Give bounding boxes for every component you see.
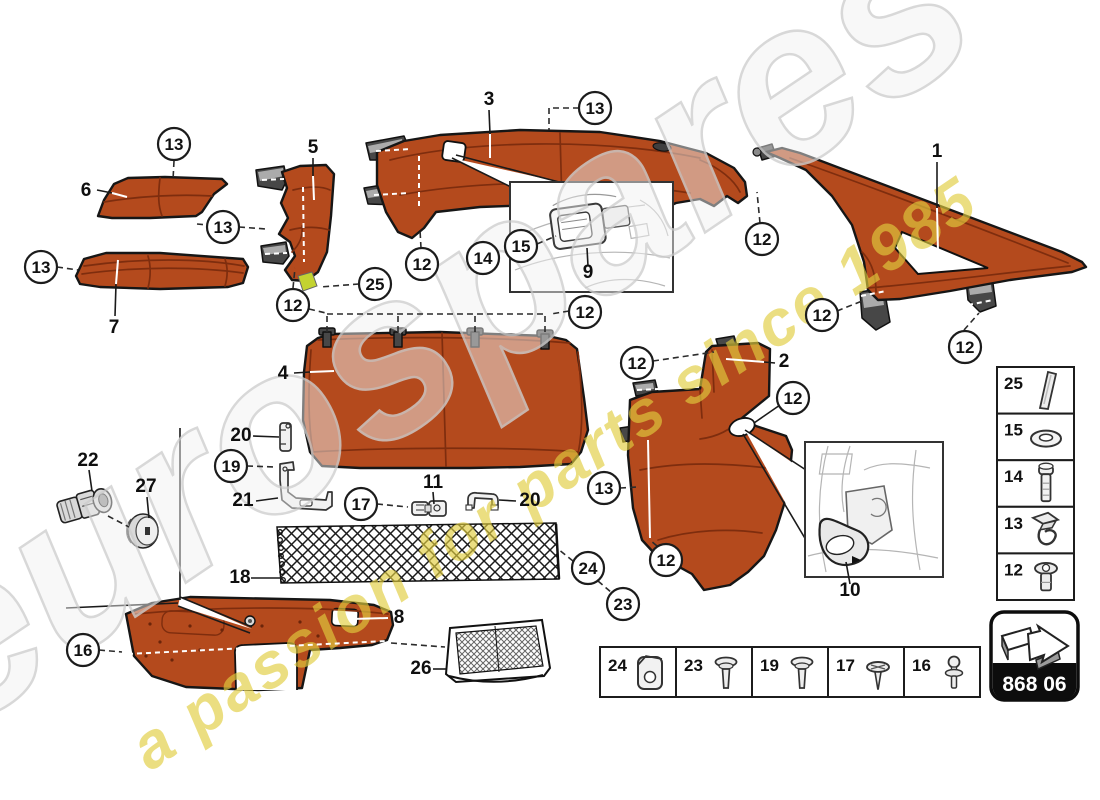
part-7-sill-trim	[76, 253, 248, 289]
sidebar-cell-12[interactable]: 12	[997, 553, 1074, 600]
svg-text:19: 19	[222, 457, 241, 476]
legend-cell-19[interactable]: 19	[752, 647, 828, 697]
svg-text:16: 16	[74, 641, 93, 660]
sidebar-cell-number: 15	[1004, 421, 1023, 440]
sidebar-cell-number: 25	[1004, 374, 1023, 393]
part-1-a-pillar-trim	[753, 144, 1086, 330]
svg-text:23: 23	[614, 595, 633, 614]
part-label-7[interactable]: 7	[109, 317, 120, 338]
svg-text:12: 12	[576, 303, 595, 322]
callout-25[interactable]: 25	[359, 268, 391, 300]
callout-12[interactable]: 12	[650, 544, 682, 576]
sidebar-cell-number: 14	[1004, 467, 1023, 486]
legend-cell-number: 17	[836, 656, 855, 675]
svg-text:25: 25	[366, 275, 385, 294]
svg-text:24: 24	[579, 559, 598, 578]
svg-text:14: 14	[474, 249, 493, 268]
part-label-8[interactable]: 8	[394, 607, 405, 628]
part-label-4[interactable]: 4	[278, 363, 289, 384]
part-label-5[interactable]: 5	[308, 137, 319, 158]
part-label-26[interactable]: 26	[410, 658, 431, 679]
inset-coat-hook-detail	[805, 442, 943, 577]
callout-12[interactable]: 12	[949, 331, 981, 363]
callout-17[interactable]: 17	[345, 488, 377, 520]
part-label-2[interactable]: 2	[779, 351, 790, 372]
legend-cell-17[interactable]: 17	[828, 647, 904, 697]
sidebar-cell-number: 13	[1004, 514, 1023, 533]
callout-23[interactable]: 23	[607, 588, 639, 620]
clamp-bracket-icon	[638, 656, 662, 689]
part-5-b-pillar-trim	[256, 165, 334, 291]
diagram-part-number: 868 06	[1002, 673, 1066, 696]
svg-text:12: 12	[657, 551, 676, 570]
callout-12[interactable]: 12	[777, 382, 809, 414]
callout-13[interactable]: 13	[25, 251, 57, 283]
part-22-socket	[56, 486, 115, 525]
callout-12[interactable]: 12	[746, 223, 778, 255]
part-label-10[interactable]: 10	[839, 580, 860, 601]
legend-cell-23[interactable]: 23	[676, 647, 752, 697]
callout-13[interactable]: 13	[158, 128, 190, 160]
callout-13[interactable]: 13	[579, 92, 611, 124]
svg-text:13: 13	[32, 258, 51, 277]
svg-text:12: 12	[413, 255, 432, 274]
callout-12[interactable]: 12	[277, 289, 309, 321]
callout-12[interactable]: 12	[406, 248, 438, 280]
svg-text:12: 12	[784, 389, 803, 408]
legend-cell-24[interactable]: 24	[600, 647, 676, 697]
svg-text:12: 12	[813, 306, 832, 325]
part-label-27[interactable]: 27	[135, 476, 156, 497]
legend-cell-16[interactable]: 16	[904, 647, 980, 697]
svg-text:13: 13	[595, 479, 614, 498]
svg-text:12: 12	[628, 354, 647, 373]
part-label-3[interactable]: 3	[484, 89, 495, 110]
bracket-20-upper	[280, 423, 291, 451]
bracket-21	[280, 462, 332, 510]
svg-text:17: 17	[352, 495, 371, 514]
bracket-20-right	[466, 493, 498, 510]
sidebar-cell-13[interactable]: 13	[997, 507, 1074, 554]
interior-decor-parts-diagram: eurospares a passion for parts since 198…	[0, 0, 1100, 800]
part-4-headliner	[303, 328, 588, 468]
fastener-legend: 2423191716	[600, 647, 980, 697]
part-label-18[interactable]: 18	[229, 567, 250, 588]
part-label-20[interactable]: 20	[230, 425, 251, 446]
callout-12[interactable]: 12	[806, 299, 838, 331]
sidebar-cell-14[interactable]: 14	[997, 460, 1074, 507]
sidebar-cell-25[interactable]: 25	[997, 367, 1074, 414]
part-26-net-pocket	[446, 620, 550, 682]
clip-11-retainer	[412, 501, 446, 516]
callout-14[interactable]: 14	[467, 242, 499, 274]
part-label-20[interactable]: 20	[519, 490, 540, 511]
callout-13[interactable]: 13	[207, 211, 239, 243]
svg-text:12: 12	[956, 338, 975, 357]
part-18-luggage-net	[277, 523, 559, 583]
callout-12[interactable]: 12	[569, 296, 601, 328]
bolt-icon	[1039, 463, 1053, 501]
legend-cell-number: 16	[912, 656, 931, 675]
svg-text:13: 13	[165, 135, 184, 154]
part-label-22[interactable]: 22	[77, 450, 98, 471]
part-label-21[interactable]: 21	[232, 490, 254, 511]
sidebar-cell-number: 12	[1004, 560, 1023, 579]
part-label-9[interactable]: 9	[583, 262, 594, 283]
legend-cell-number: 24	[608, 656, 627, 675]
part-label-6[interactable]: 6	[81, 180, 92, 201]
parts-diagram-page: eurospares a passion for parts since 198…	[0, 0, 1100, 800]
callout-24[interactable]: 24	[572, 552, 604, 584]
svg-text:12: 12	[753, 230, 772, 249]
legend-cell-number: 23	[684, 656, 703, 675]
svg-text:12: 12	[284, 296, 303, 315]
callout-13[interactable]: 13	[588, 472, 620, 504]
part-label-11[interactable]: 11	[423, 472, 444, 493]
callout-16[interactable]: 16	[67, 634, 99, 666]
fastener-sidebar: 2515141312	[997, 367, 1074, 600]
callout-19[interactable]: 19	[215, 450, 247, 482]
sidebar-cell-15[interactable]: 15	[997, 414, 1074, 461]
legend-cell-number: 19	[760, 656, 779, 675]
svg-text:15: 15	[512, 237, 531, 256]
svg-text:13: 13	[586, 99, 605, 118]
callout-12[interactable]: 12	[621, 347, 653, 379]
callout-15[interactable]: 15	[505, 230, 537, 262]
svg-text:13: 13	[214, 218, 233, 237]
part-6-upper-pillar-trim	[98, 177, 227, 218]
part-label-1[interactable]: 1	[932, 141, 943, 162]
washer-icon	[1031, 431, 1061, 447]
part-27-cap	[127, 514, 158, 548]
part-number-box: 868 06	[991, 612, 1078, 700]
